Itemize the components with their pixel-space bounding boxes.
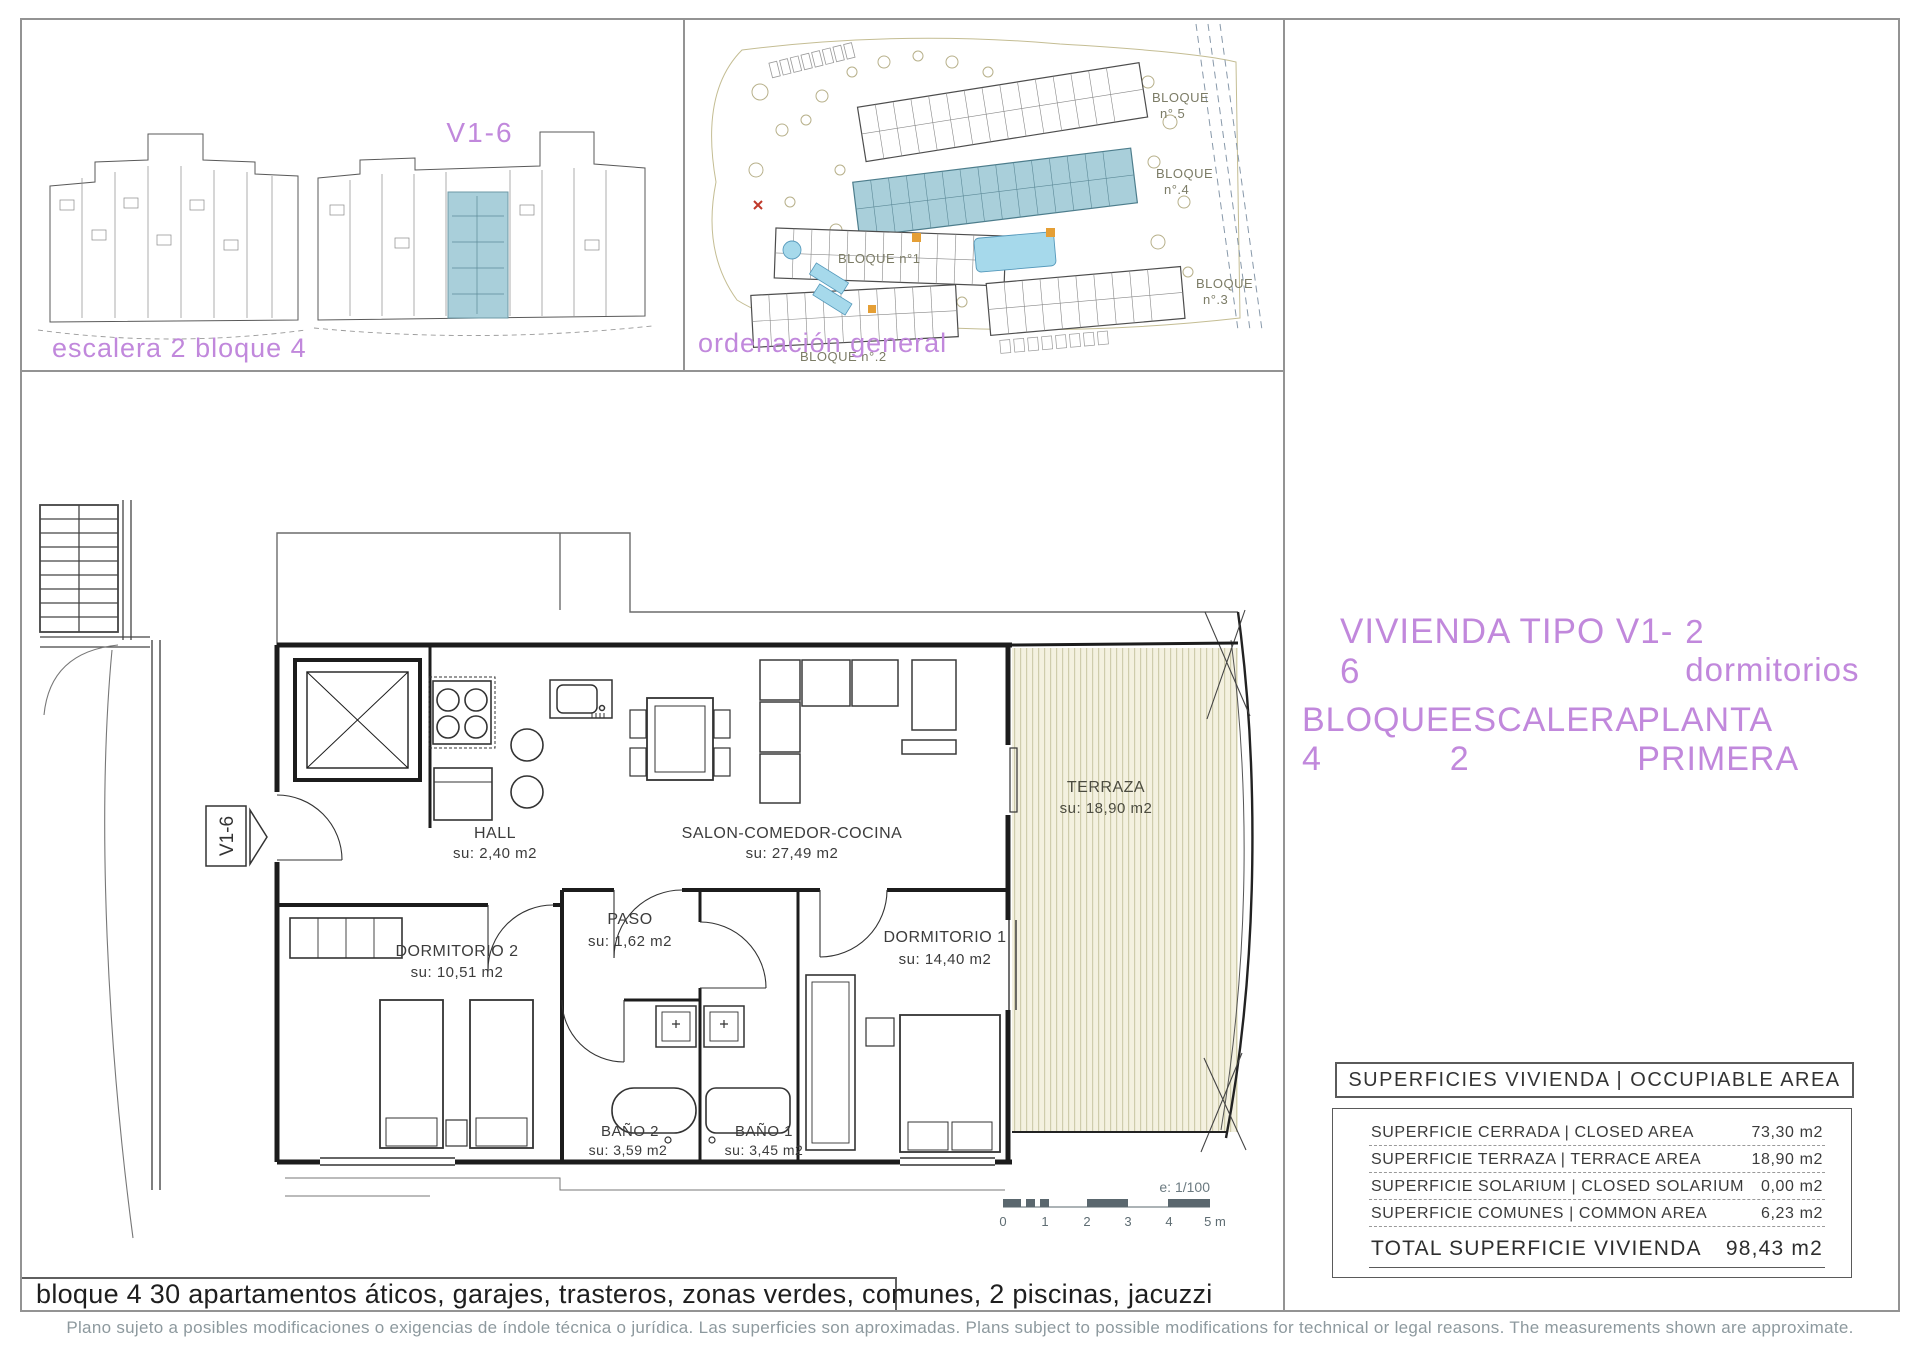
- row-label: SUPERFICIE TERRAZA | TERRACE AREA: [1371, 1151, 1701, 1169]
- bottom-summary-bar: bloque 4 30 apartamentos áticos, garajes…: [22, 1277, 897, 1310]
- table-row: SUPERFICIE TERRAZA | TERRACE AREA 18,90 …: [1369, 1146, 1825, 1173]
- top-panels-bottom-line: [20, 370, 1283, 372]
- row-label: SUPERFICIE CERRADA | CLOSED AREA: [1371, 1124, 1694, 1142]
- table-row: SUPERFICIE CERRADA | CLOSED AREA 73,30 m…: [1369, 1119, 1825, 1146]
- table-row: SUPERFICIE SOLARIUM | CLOSED SOLARIUM 0,…: [1369, 1173, 1825, 1200]
- title-dormitorios: 2 dormitorios: [1685, 613, 1884, 689]
- row-value: 0,00 m2: [1761, 1178, 1823, 1196]
- title-bloque: BLOQUE 4: [1302, 701, 1450, 779]
- row-value: 73,30 m2: [1751, 1124, 1823, 1142]
- title-vivienda-tipo: VIVIENDA TIPO V1-6: [1340, 612, 1685, 692]
- vertical-divider: [1283, 18, 1285, 1310]
- title-planta: PLANTA PRIMERA: [1637, 701, 1884, 779]
- row-label: SUPERFICIE COMUNES | COMMON AREA: [1371, 1205, 1707, 1223]
- title-block: VIVIENDA TIPO V1-6 2 dormitorios BLOQUE …: [1302, 612, 1884, 779]
- bottom-summary-text: bloque 4 30 apartamentos áticos, garajes…: [22, 1279, 1213, 1310]
- total-value: 98,43 m2: [1726, 1237, 1823, 1261]
- row-label: SUPERFICIE SOLARIUM | CLOSED SOLARIUM: [1371, 1178, 1744, 1196]
- areas-table-header: SUPERFICIES VIVIENDA | OCCUPIABLE AREA: [1335, 1062, 1854, 1098]
- row-value: 18,90 m2: [1751, 1151, 1823, 1169]
- areas-table: SUPERFICIE CERRADA | CLOSED AREA 73,30 m…: [1332, 1108, 1852, 1278]
- title-escalera: ESCALERA 2: [1450, 701, 1638, 779]
- areas-table-title: SUPERFICIES VIVIENDA | OCCUPIABLE AREA: [1348, 1069, 1840, 1092]
- disclaimer-footer: Plano sujeto a posibles modificaciones o…: [0, 1318, 1920, 1338]
- table-total-row: TOTAL SUPERFICIE VIVIENDA 98,43 m2: [1369, 1227, 1825, 1268]
- total-label: TOTAL SUPERFICIE VIVIENDA: [1371, 1237, 1702, 1261]
- top-panels-divider: [683, 18, 685, 370]
- disclaimer-text: Plano sujeto a posibles modificaciones o…: [66, 1318, 1853, 1337]
- row-value: 6,23 m2: [1761, 1205, 1823, 1223]
- table-row: SUPERFICIE COMUNES | COMMON AREA 6,23 m2: [1369, 1200, 1825, 1227]
